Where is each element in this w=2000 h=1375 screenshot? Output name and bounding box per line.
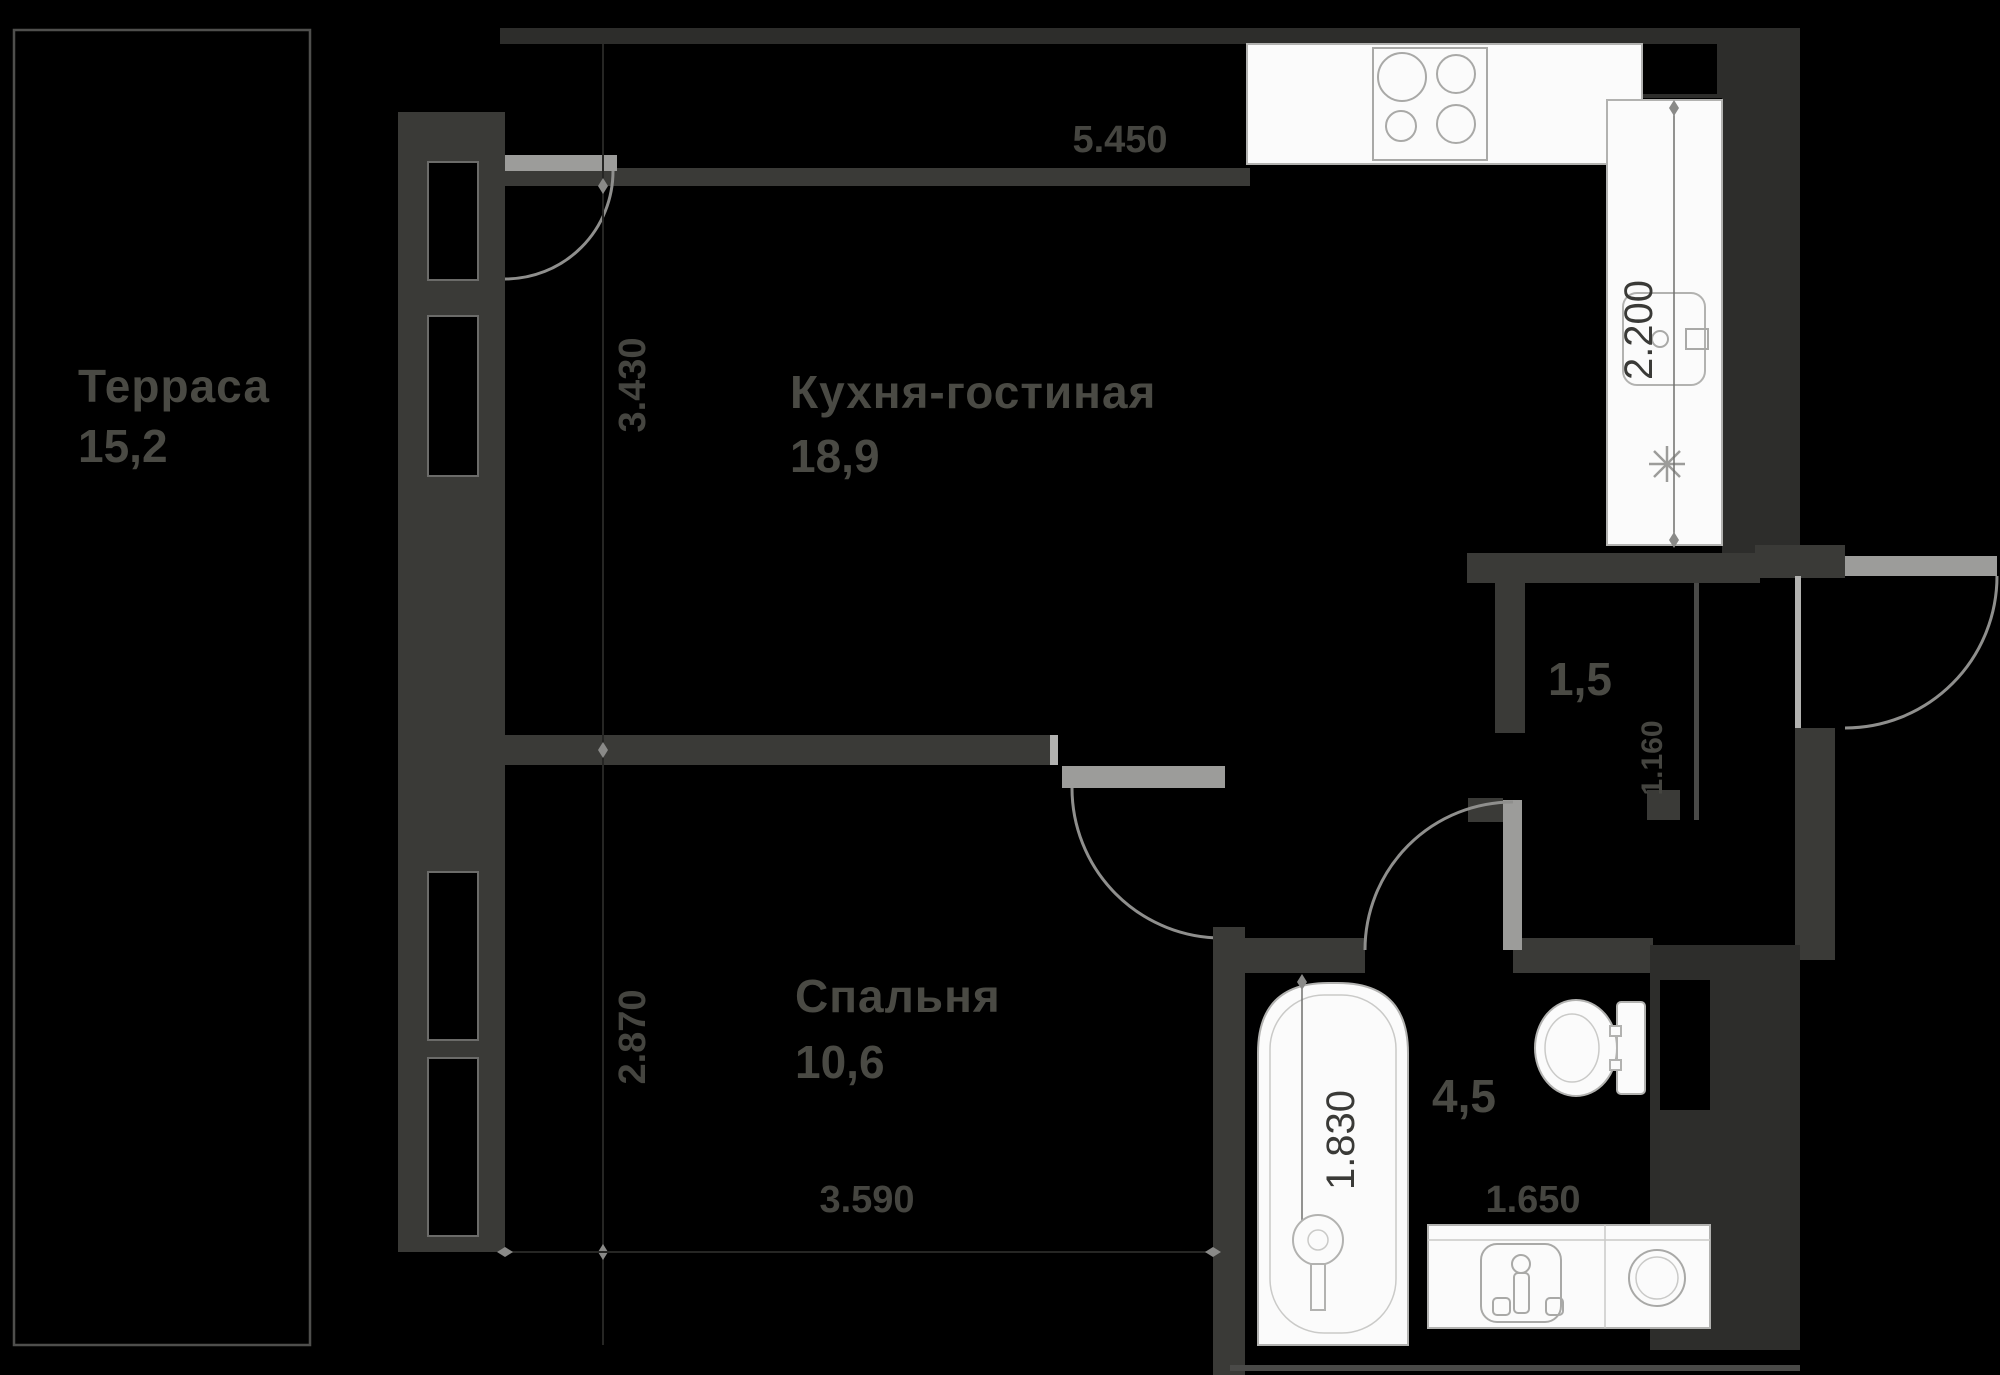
wardrobe-left-wall [1495, 583, 1525, 733]
bathroom-door-swing-arc [1365, 802, 1513, 950]
window-bedroom-upper [428, 872, 478, 1040]
dim-vanity: 1.650 [1485, 1179, 1580, 1221]
terrace-outline [14, 30, 310, 1345]
entrance-jamb-cap [1795, 576, 1801, 728]
kitchen-living-area: 18,9 [790, 430, 880, 482]
terrace-area: 15,2 [78, 420, 168, 472]
dim-wardrobe: 1.160 [1636, 720, 1669, 795]
top-wall [500, 28, 1800, 44]
bedroom-door-swing-arc [1072, 788, 1222, 938]
wardrobe-top-wall [1467, 553, 1760, 583]
bedroom-area: 10,6 [795, 1036, 885, 1088]
dim-kitchen-left: 3.430 [612, 337, 654, 432]
bathtub-icon: 1.830 [1258, 974, 1408, 1345]
mid-wall-band [398, 735, 1058, 765]
bathroom-door-leaf [1503, 800, 1522, 950]
toilet-icon [1535, 1000, 1645, 1096]
wardrobe: 1,5 1.160 [1467, 553, 1760, 820]
dim-bedroom-bottom: 3.590 [819, 1179, 914, 1221]
vanity-counter [1428, 1225, 1710, 1328]
bathroom-area: 4,5 [1432, 1070, 1496, 1122]
window-bedroom-lower [428, 1058, 478, 1236]
right-wall-upper [1722, 94, 1800, 564]
balcony-door-leaf [505, 155, 617, 171]
floor-plan-svg: Терраса 15,2 [0, 0, 2000, 1375]
mid-wall-endcap [1050, 735, 1058, 765]
window-kitchen-lower [428, 316, 478, 476]
bath-north-wall-left [1245, 938, 1365, 973]
toilet-tank [1617, 1002, 1645, 1094]
toilet-hinge-bottom [1610, 1060, 1621, 1070]
bedroom-label: Спальня [795, 970, 1001, 1022]
entrance-side-wall [1795, 728, 1835, 960]
bathroom-niche [1660, 980, 1710, 1110]
hallway [1245, 798, 1653, 973]
bathroom: 1.830 4,5 [1230, 945, 1800, 1368]
dim-bathtub: 1.830 [1319, 1090, 1363, 1190]
terrace-label: Терраса [78, 360, 270, 412]
wardrobe-right-wall-line [1694, 583, 1699, 820]
floor-plan-stage: Терраса 15,2 [0, 0, 2000, 1375]
window-wall [398, 112, 505, 1252]
bath-north-wall-right [1513, 938, 1653, 973]
bedroom: Спальня 10,6 [795, 970, 1001, 1088]
dim-kitchen-top: 5.450 [1072, 119, 1167, 161]
entrance-top-wall [1755, 545, 1845, 578]
window-kitchen-upper [428, 162, 478, 280]
dimension-chains: 5.450 3.590 3.430 2.870 [497, 44, 1221, 1345]
toilet-hinge-top [1610, 1026, 1621, 1036]
entrance [1755, 545, 1997, 960]
kitchen-counter-top [1247, 44, 1642, 164]
bathtub-faucet-stem [1311, 1264, 1325, 1310]
bedroom-door-leaf [1062, 766, 1225, 788]
dim-counter-right: 2.200 [1617, 280, 1661, 380]
balcony-door-swing-arc [505, 171, 613, 279]
entrance-door-swing-arc [1845, 576, 1997, 728]
dim-bedroom-left: 2.870 [612, 989, 654, 1084]
entrance-door-leaf [1845, 556, 1997, 576]
kitchen-living-label: Кухня-гостиная [790, 366, 1156, 418]
wardrobe-area: 1,5 [1548, 653, 1612, 705]
terrace: Терраса 15,2 [14, 30, 310, 1345]
light-symbol-icon [1649, 446, 1685, 482]
bathtub-faucet-outer [1293, 1215, 1343, 1265]
bathroom-left-wall [1213, 927, 1245, 1375]
